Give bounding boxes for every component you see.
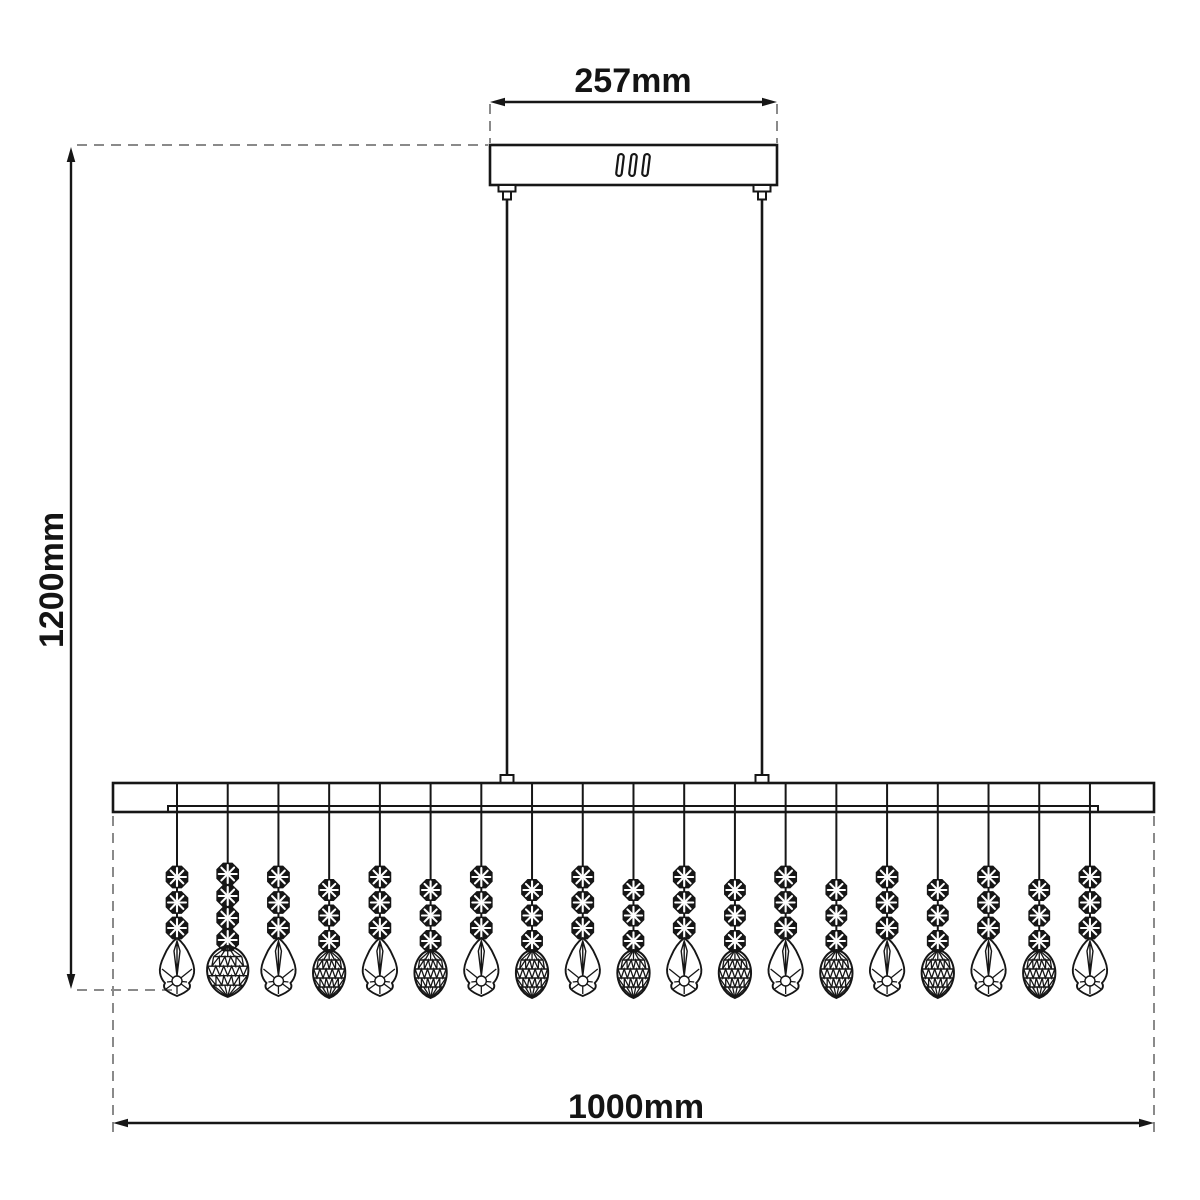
flower-bead bbox=[877, 866, 898, 887]
flower-bead bbox=[775, 917, 796, 938]
flower-bead bbox=[268, 866, 289, 887]
flower-bead bbox=[978, 892, 999, 913]
flower-bead bbox=[674, 917, 695, 938]
flower-bead bbox=[217, 885, 238, 906]
crystal-strand bbox=[1023, 784, 1055, 998]
flower-bead bbox=[166, 917, 187, 938]
faceted-drop-crystal bbox=[516, 950, 548, 998]
flower-bead bbox=[877, 892, 898, 913]
flower-bead bbox=[217, 863, 238, 884]
flower-bead bbox=[1079, 917, 1100, 938]
canopy-slot bbox=[629, 154, 637, 177]
flower-bead bbox=[268, 917, 289, 938]
faceted-drop-crystal bbox=[207, 946, 248, 997]
crystal-strand bbox=[768, 784, 802, 996]
flower-bead bbox=[319, 905, 339, 925]
flower-bead bbox=[978, 866, 999, 887]
faceted-drop-crystal bbox=[617, 950, 649, 998]
canopy-slot bbox=[642, 154, 650, 177]
crystal-strand bbox=[820, 784, 852, 998]
flower-bead bbox=[572, 917, 593, 938]
flower-bead bbox=[826, 931, 846, 951]
flower-bead bbox=[166, 892, 187, 913]
flower-bead bbox=[319, 880, 339, 900]
flower-bead bbox=[978, 917, 999, 938]
crystal-strand bbox=[261, 784, 295, 996]
flower-bead bbox=[1079, 892, 1100, 913]
faceted-drop-crystal bbox=[820, 950, 852, 998]
faceted-drop-crystal bbox=[1023, 950, 1055, 998]
pendalogue-crystal bbox=[363, 938, 397, 996]
crystal-strand bbox=[870, 784, 904, 996]
flower-bead bbox=[826, 905, 846, 925]
pendant-light-line-drawing bbox=[0, 0, 1200, 1200]
flower-bead bbox=[420, 905, 440, 925]
pendalogue-crystal bbox=[464, 938, 498, 996]
flower-bead bbox=[1029, 931, 1049, 951]
canopy-width-dimension-label: 257mm bbox=[574, 64, 691, 98]
flower-bead bbox=[268, 892, 289, 913]
crystal-strand bbox=[1073, 784, 1107, 996]
pendalogue-crystal bbox=[870, 938, 904, 996]
flower-bead bbox=[725, 931, 745, 951]
flower-bead bbox=[522, 931, 542, 951]
crystal-strand bbox=[667, 784, 701, 996]
flower-bead bbox=[471, 866, 492, 887]
flower-bead bbox=[369, 866, 390, 887]
pendalogue-crystal bbox=[261, 938, 295, 996]
flower-bead bbox=[623, 931, 643, 951]
flower-bead bbox=[928, 905, 948, 925]
flower-bead bbox=[725, 880, 745, 900]
rod-canopy-fitting bbox=[503, 192, 511, 200]
crystal-strand bbox=[464, 784, 498, 996]
pendalogue-crystal bbox=[667, 938, 701, 996]
canopy-slot bbox=[616, 154, 624, 177]
technical-drawing-canvas: 257mm 1200mm 1000mm bbox=[0, 0, 1200, 1200]
flower-bead bbox=[217, 907, 238, 928]
flower-bead bbox=[775, 892, 796, 913]
flower-bead bbox=[369, 917, 390, 938]
bar-width-dimension-label: 1000mm bbox=[568, 1090, 704, 1124]
flower-bead bbox=[420, 931, 440, 951]
crystal-strand bbox=[922, 784, 954, 998]
flower-bead bbox=[166, 866, 187, 887]
flower-bead bbox=[877, 917, 898, 938]
flower-bead bbox=[928, 931, 948, 951]
flower-bead bbox=[420, 880, 440, 900]
faceted-drop-crystal bbox=[719, 950, 751, 998]
flower-bead bbox=[826, 880, 846, 900]
flower-bead bbox=[1079, 866, 1100, 887]
flower-bead bbox=[369, 892, 390, 913]
crystal-strand bbox=[566, 784, 600, 996]
rod-canopy-fitting bbox=[758, 192, 766, 200]
crystal-strand bbox=[160, 784, 194, 996]
pendalogue-crystal bbox=[768, 938, 802, 996]
flower-bead bbox=[674, 892, 695, 913]
pendalogue-crystal bbox=[971, 938, 1005, 996]
overall-height-dimension-label: 1200mm bbox=[35, 512, 69, 648]
crystal-strand bbox=[617, 784, 649, 998]
flower-bead bbox=[471, 892, 492, 913]
flower-bead bbox=[674, 866, 695, 887]
crystal-strand bbox=[207, 784, 248, 997]
pendalogue-crystal bbox=[160, 938, 194, 996]
crystal-strand bbox=[516, 784, 548, 998]
crystal-strand bbox=[971, 784, 1005, 996]
flower-bead bbox=[572, 892, 593, 913]
crystal-strand bbox=[414, 784, 446, 998]
flower-bead bbox=[725, 905, 745, 925]
ceiling-canopy bbox=[490, 145, 777, 185]
faceted-drop-crystal bbox=[922, 950, 954, 998]
flower-bead bbox=[471, 917, 492, 938]
flower-bead bbox=[775, 866, 796, 887]
crystal-strand bbox=[313, 784, 345, 998]
pendalogue-crystal bbox=[566, 938, 600, 996]
flower-bead bbox=[928, 880, 948, 900]
flower-bead bbox=[572, 866, 593, 887]
pendalogue-crystal bbox=[1073, 938, 1107, 996]
faceted-drop-crystal bbox=[313, 950, 345, 998]
flower-bead bbox=[522, 880, 542, 900]
faceted-drop-crystal bbox=[414, 950, 446, 998]
flower-bead bbox=[1029, 880, 1049, 900]
flower-bead bbox=[623, 880, 643, 900]
suspension-rod bbox=[499, 185, 516, 784]
suspension-rod bbox=[754, 185, 771, 784]
crystal-strand bbox=[719, 784, 751, 998]
flower-bead bbox=[623, 905, 643, 925]
flower-bead bbox=[319, 931, 339, 951]
flower-bead bbox=[522, 905, 542, 925]
crystal-strand bbox=[363, 784, 397, 996]
flower-bead bbox=[1029, 905, 1049, 925]
